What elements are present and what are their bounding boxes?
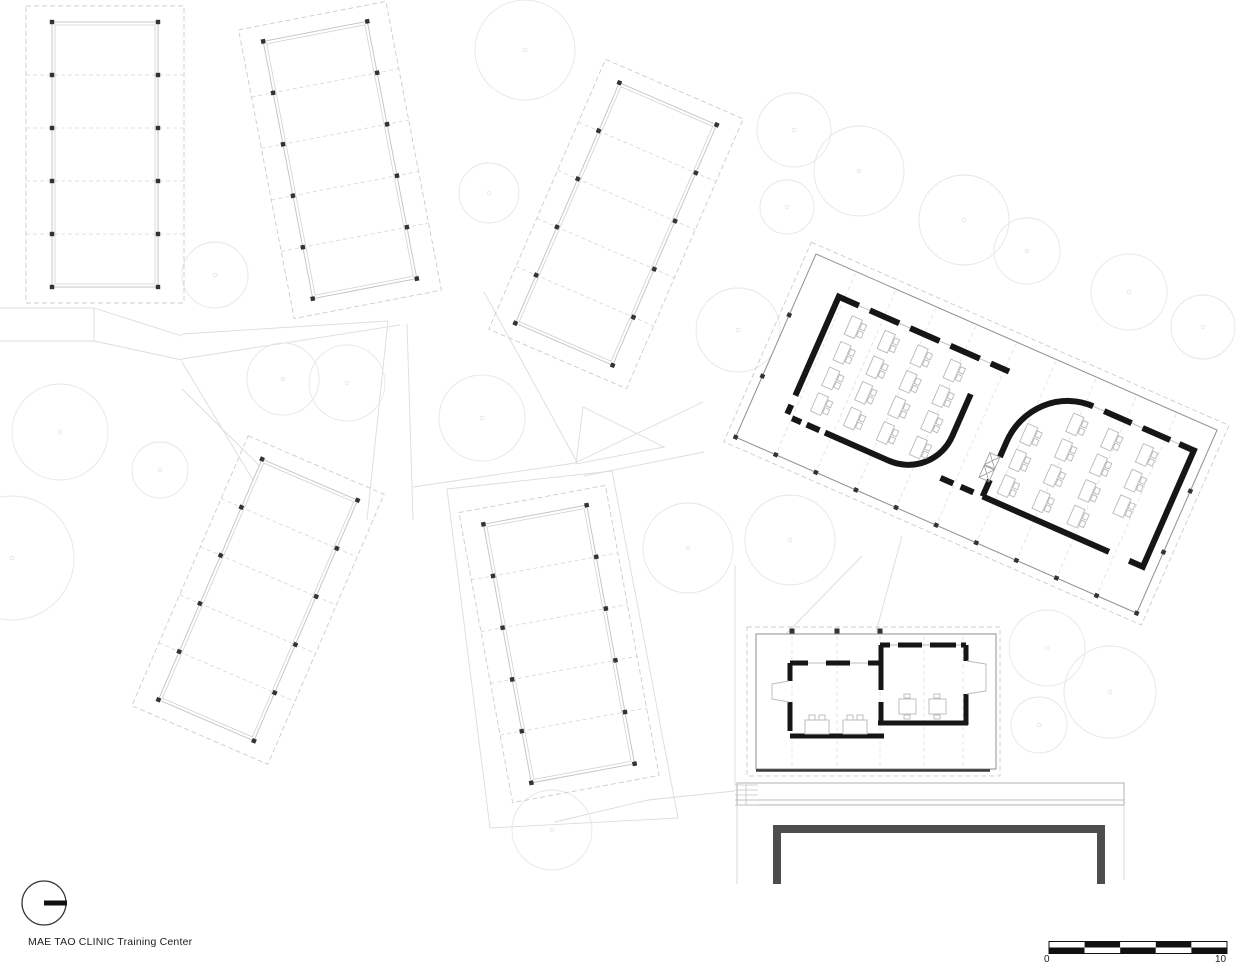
column-marker: [50, 20, 54, 24]
column-marker: [414, 276, 419, 281]
classroom-wall: [787, 405, 791, 414]
chair: [819, 715, 825, 720]
scale-segment: [1120, 942, 1156, 948]
walkway-edge: [94, 308, 182, 336]
column-marker: [481, 522, 486, 527]
tree-canopy-icon: [919, 175, 1009, 265]
column-marker: [50, 285, 54, 289]
tree-canopy-icon: [814, 126, 904, 216]
tree-canopy-icon: [1011, 697, 1067, 753]
building-plan-dorm-c: [489, 59, 743, 388]
column-marker: [529, 780, 534, 785]
tree-trunk-icon: [480, 416, 484, 420]
column-marker: [365, 19, 370, 24]
column-marker: [50, 73, 54, 77]
column-marker: [594, 554, 599, 559]
column-marker: [500, 625, 505, 630]
chair: [934, 715, 940, 719]
tree-canopy-icon: [1171, 295, 1235, 359]
tree-trunk-icon: [213, 273, 217, 277]
building-plan-dorm-b: [239, 1, 442, 318]
terrace-area: [735, 783, 1124, 884]
scale-segment: [1049, 942, 1085, 948]
scale-segment: [1085, 942, 1121, 948]
scale-segment: [1120, 948, 1156, 954]
walkway-edge: [413, 463, 575, 487]
chair: [934, 694, 940, 698]
tree-canopy-icon: [182, 242, 248, 308]
table: [843, 720, 867, 734]
tree-trunk-icon: [58, 430, 62, 434]
building-plan-dorm-a: [26, 6, 184, 303]
column-marker: [50, 126, 54, 130]
tree-canopy-icon: [760, 180, 814, 234]
scale-segment: [1191, 942, 1227, 948]
chair: [847, 715, 853, 720]
building-plan-dorm-d: [132, 436, 384, 765]
column-marker: [490, 573, 495, 578]
column-marker: [790, 629, 795, 634]
scale-segment: [1085, 948, 1121, 954]
walkway-edge: [648, 791, 735, 800]
column-marker: [156, 73, 160, 77]
tree-trunk-icon: [281, 377, 285, 381]
column-marker: [385, 122, 390, 127]
tree-trunk-icon: [550, 828, 554, 832]
annex-building-plan: [747, 627, 1000, 776]
column-marker: [622, 709, 627, 714]
walkway-edge: [182, 325, 400, 359]
column-marker: [261, 39, 266, 44]
scale-bar-ten-label: 10: [1215, 954, 1226, 965]
tree-canopy-icon: [994, 218, 1060, 284]
building-outline: [515, 83, 716, 366]
tree-canopy-icon: [247, 343, 319, 415]
tree-canopy-icon: [309, 345, 385, 421]
site-plan-sheet: MAE TAO CLINIC Training Center 0 10: [0, 0, 1250, 968]
column-marker: [310, 296, 315, 301]
column-marker: [300, 245, 305, 250]
tree-trunk-icon: [686, 546, 690, 550]
tree-canopy-icon: [1064, 646, 1156, 738]
walkway-edge: [575, 402, 703, 463]
tree-trunk-icon: [1025, 249, 1029, 253]
site-plan-drawing: [0, 0, 1250, 968]
chair: [904, 694, 910, 698]
building-plan-dorm-e: [459, 485, 659, 802]
column-marker: [280, 142, 285, 147]
scale-segment: [1156, 948, 1192, 954]
tree-trunk-icon: [1201, 325, 1205, 329]
column-marker: [156, 285, 160, 289]
building-outline: [263, 21, 417, 298]
walkway-edge: [407, 324, 413, 520]
tree-canopy-icon: [132, 442, 188, 498]
tree-canopy-icon: [696, 288, 780, 372]
desk-table: [929, 699, 946, 714]
desk-table: [899, 699, 916, 714]
column-marker: [50, 179, 54, 183]
tree-trunk-icon: [345, 381, 349, 385]
tree-canopy-icon: [459, 163, 519, 223]
training-hall-plan: [724, 242, 1229, 625]
terrace-outline: [737, 783, 1124, 805]
column-marker: [156, 232, 160, 236]
chair: [857, 715, 863, 720]
tree-trunk-icon: [1037, 723, 1041, 727]
tree-canopy-icon: [0, 496, 74, 620]
tree-trunk-icon: [1127, 290, 1131, 294]
column-marker: [156, 179, 160, 183]
tree-canopy-icon: [512, 790, 592, 870]
tree-canopy-icon: [439, 375, 525, 461]
tree-trunk-icon: [857, 169, 861, 173]
tree-canopy-icon: [643, 503, 733, 593]
tree-canopy-icon: [757, 93, 831, 167]
walkway-outline: [576, 407, 664, 464]
courtyard-wall: [777, 829, 1101, 884]
scale-segment: [1049, 948, 1085, 954]
tree-trunk-icon: [1045, 646, 1049, 650]
tree-trunk-icon: [523, 48, 527, 52]
tree-canopy-icon: [475, 0, 575, 100]
column-marker: [613, 658, 618, 663]
column-marker: [510, 677, 515, 682]
tree-canopy-icon: [745, 495, 835, 585]
column-marker: [375, 70, 380, 75]
scale-bar-zero-label: 0: [1044, 954, 1050, 965]
scale-segment: [1191, 948, 1227, 954]
north-arrow-needle: [44, 901, 67, 906]
walkway-edge: [94, 341, 182, 360]
tree-canopy-icon: [12, 384, 108, 480]
scale-bar: [1049, 942, 1227, 954]
column-marker: [290, 193, 295, 198]
building-outline: [158, 459, 357, 741]
tree-canopy-icon: [1091, 254, 1167, 330]
column-marker: [271, 90, 276, 95]
column-marker: [156, 126, 160, 130]
chair: [904, 715, 910, 719]
column-marker: [632, 761, 637, 766]
tree-trunk-icon: [10, 556, 14, 560]
column-marker: [835, 629, 840, 634]
walkway-edge: [786, 556, 862, 634]
tree-canopy-icon: [1009, 610, 1085, 686]
walkway-edge: [876, 536, 902, 632]
north-arrow-icon: [22, 881, 67, 925]
walkway-edge: [367, 321, 388, 520]
tree-trunk-icon: [788, 538, 792, 542]
walkway-edge: [555, 800, 648, 822]
column-marker: [603, 606, 608, 611]
building-outline: [52, 22, 158, 287]
tree-trunk-icon: [785, 205, 789, 209]
scale-segment: [1156, 942, 1192, 948]
tree-trunk-icon: [736, 328, 740, 332]
column-marker: [156, 20, 160, 24]
chair: [809, 715, 815, 720]
tree-trunk-icon: [962, 218, 966, 222]
classroom-wall: [792, 418, 801, 422]
building-outline: [483, 505, 634, 783]
column-marker: [404, 225, 409, 230]
column-marker: [519, 729, 524, 734]
column-marker: [394, 173, 399, 178]
column-marker: [878, 629, 883, 634]
table: [805, 720, 829, 734]
tree-trunk-icon: [792, 128, 796, 132]
column-marker: [50, 232, 54, 236]
plan-title: MAE TAO CLINIC Training Center: [28, 936, 192, 948]
tree-trunk-icon: [487, 191, 491, 195]
column-marker: [584, 503, 589, 508]
tree-trunk-icon: [1108, 690, 1112, 694]
tree-trunk-icon: [158, 468, 162, 472]
